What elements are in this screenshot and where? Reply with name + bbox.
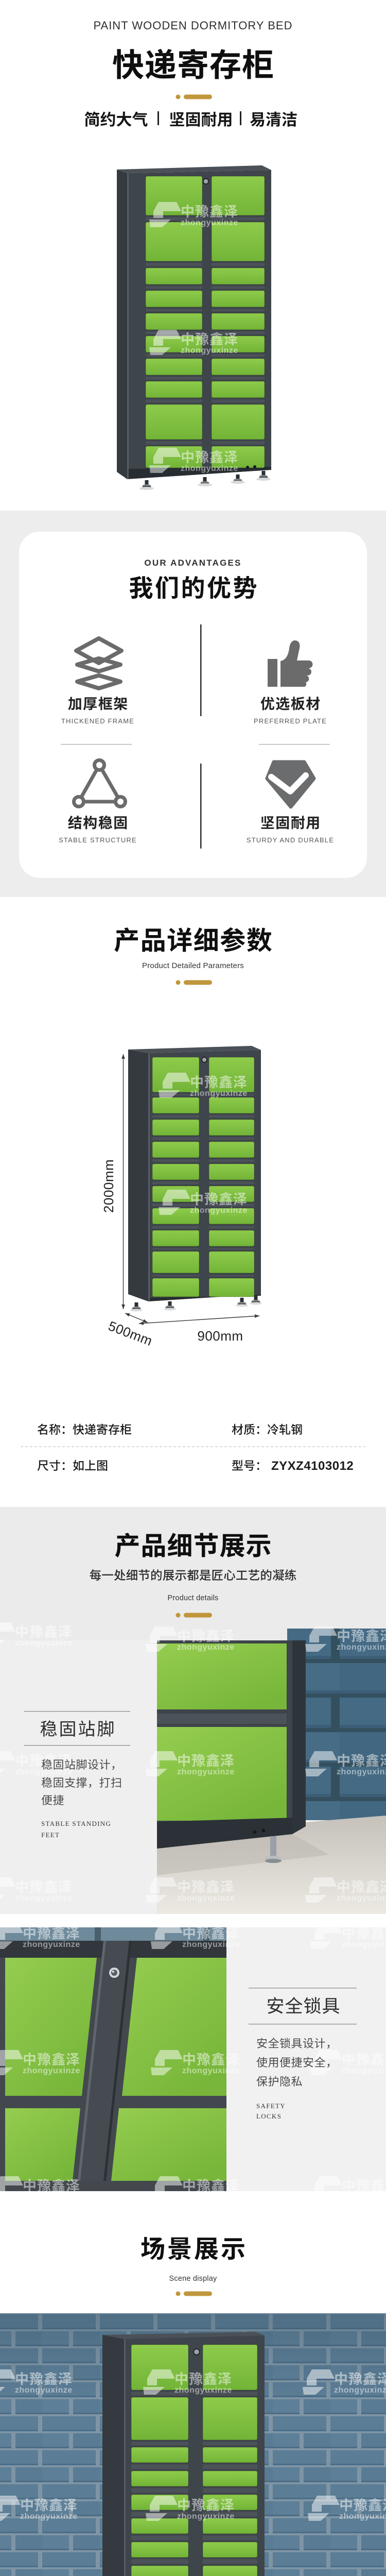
svg-text:THICKENED FRAME: THICKENED FRAME	[61, 717, 134, 725]
svg-text:STURDY AND DURABLE: STURDY AND DURABLE	[247, 836, 334, 844]
svg-text:Product Detailed Parameters: Product Detailed Parameters	[142, 961, 244, 970]
svg-text:SAFETY: SAFETY	[256, 2102, 286, 2110]
svg-text:ZYXZ4103012: ZYXZ4103012	[271, 1459, 354, 1473]
svg-text:Scene display: Scene display	[169, 2275, 217, 2283]
svg-text:PAINT WOODEN DORMITORY BED: PAINT WOODEN DORMITORY BED	[93, 19, 292, 32]
svg-text:PREFERRED PLATE: PREFERRED PLATE	[254, 717, 327, 725]
svg-text:OUR ADVANTAGES: OUR ADVANTAGES	[144, 558, 241, 568]
svg-text:LOCKS: LOCKS	[256, 2112, 282, 2120]
svg-text:900mm: 900mm	[197, 1328, 243, 1344]
svg-text:Product details: Product details	[168, 1594, 219, 1602]
svg-text:FEET: FEET	[41, 1831, 60, 1839]
svg-text:STABLE STANDING: STABLE STANDING	[41, 1820, 111, 1827]
svg-text:STABLE STRUCTURE: STABLE STRUCTURE	[59, 836, 137, 844]
svg-text:2000mm: 2000mm	[101, 1159, 116, 1213]
